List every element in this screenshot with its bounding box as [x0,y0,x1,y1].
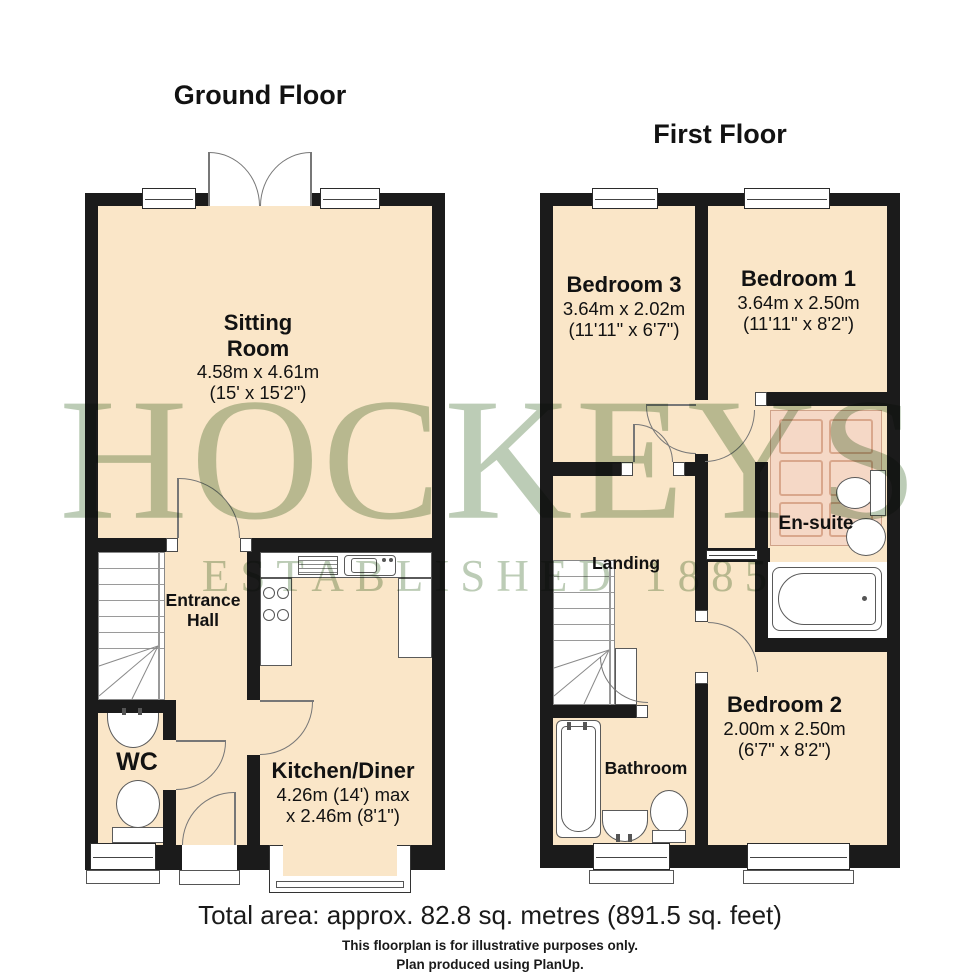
wall [237,845,271,870]
room-dims-imperial: (15' x 15'2") [148,382,368,403]
door-jamb [755,392,767,406]
wall [163,713,176,740]
tap-icon [382,558,386,562]
room-name: Kitchen/Diner [248,758,438,784]
door-jamb [695,672,708,684]
door-jamb [166,538,178,552]
hob-burner-icon [277,609,289,621]
window-sill [86,870,160,884]
tap-icon [122,708,126,715]
room-name: Bedroom 2 [692,692,877,718]
internal-window [706,550,758,560]
toilet-cistern [870,470,886,516]
wall [755,392,887,406]
room-dims-metric: 3.64m x 2.50m [706,292,891,313]
wall [312,193,320,206]
bathtub-inner [561,726,596,832]
sink-drainer [298,556,338,575]
wall [658,193,744,206]
french-door-arc [260,152,311,206]
wall [755,638,887,652]
bay-window-sill [276,881,404,888]
door-jamb [673,462,685,476]
tap-icon [567,722,571,730]
window-sill [589,870,674,884]
room-dims-imperial: (6'7" x 8'2") [692,739,877,760]
entrance-hall-label: Entrance Hall [153,590,253,631]
toilet-bowl [116,780,160,828]
front-door-opening [182,845,237,870]
window [90,843,156,870]
sitting-room-label: Sitting Room 4.58m x 4.61m (15' x 15'2") [148,310,368,404]
window [593,843,670,870]
wall [163,790,176,845]
wall [553,705,648,718]
room-dims-metric: 2.00m x 2.50m [692,718,877,739]
door-jamb [240,538,252,552]
disclaimer-text: This floorplan is for illustrative purpo… [0,938,980,953]
landing-label: Landing [576,553,676,573]
window [747,843,850,870]
tap-icon [138,708,142,715]
wall [670,845,747,868]
room-name: Bedroom 3 [534,272,714,298]
room-dims-metric: 4.26m (14') max [248,784,438,805]
tap-icon [389,558,393,562]
tap-icon [583,722,587,730]
toilet-bowl [836,477,874,509]
room-name: Entrance [153,590,253,610]
tap-icon [862,596,867,601]
bay-floor [283,845,397,876]
wall [695,454,708,548]
ensuite-label: En-suite [756,513,876,535]
toilet-bowl [650,790,688,834]
tap-icon [616,834,620,842]
door-jamb [695,610,708,622]
door-leaf [234,792,236,845]
room-name: Sitting [148,310,368,336]
wall [196,193,208,206]
ground-floor-title: Ground Floor [120,80,400,111]
window [142,188,196,209]
french-door-arc [209,152,260,206]
tap-icon [628,834,632,842]
first-floor-title: First Floor [580,119,860,150]
toilet-cistern [652,830,686,843]
wall [409,845,445,870]
wall [850,845,900,868]
staircase [553,560,615,705]
bedroom2-label: Bedroom 2 2.00m x 2.50m (6'7" x 8'2") [692,692,877,760]
bedroom1-label: Bedroom 1 3.64m x 2.50m (11'11" x 8'2") [706,266,891,334]
room-name: Hall [153,610,253,630]
total-area-text: Total area: approx. 82.8 sq. metres (891… [0,900,980,931]
room-name: Room [148,336,368,362]
credit-text: Plan produced using PlanUp. [0,957,980,972]
window-sill [743,870,854,884]
floorplan-canvas: Ground Floor First Floor [0,0,980,980]
hob-burner-icon [277,587,289,599]
wc-label: WC [102,748,172,777]
wall [156,845,182,870]
door-sill [179,870,240,885]
bathroom-label: Bathroom [596,758,696,778]
kitchen-sink-bowl [351,558,377,573]
room-dims-metric: 3.64m x 2.02m [534,298,714,319]
room-dims-metric: 4.58m x 4.61m [148,361,368,382]
room-dims-imperial: (11'11" x 6'7") [534,319,714,340]
room-dims-imperial: x 2.46m (8'1") [248,805,438,826]
wall [540,845,593,868]
bedroom3-label: Bedroom 3 3.64m x 2.02m (11'11" x 6'7") [534,272,714,340]
wall [85,193,98,870]
door-jamb [636,705,648,718]
hob-burner-icon [263,609,275,621]
hob-burner-icon [263,587,275,599]
window [592,188,658,209]
door-jamb [621,462,633,476]
window [744,188,830,209]
kitchen-diner-label: Kitchen/Diner 4.26m (14') max x 2.46m (8… [248,758,438,826]
window [320,188,380,209]
room-name: Bedroom 1 [706,266,891,292]
toilet-cistern [112,827,164,843]
room-dims-imperial: (11'11" x 8'2") [706,313,891,334]
wall [755,462,768,562]
wall [240,538,432,552]
wall [98,700,176,713]
kitchen-counter [398,578,432,658]
